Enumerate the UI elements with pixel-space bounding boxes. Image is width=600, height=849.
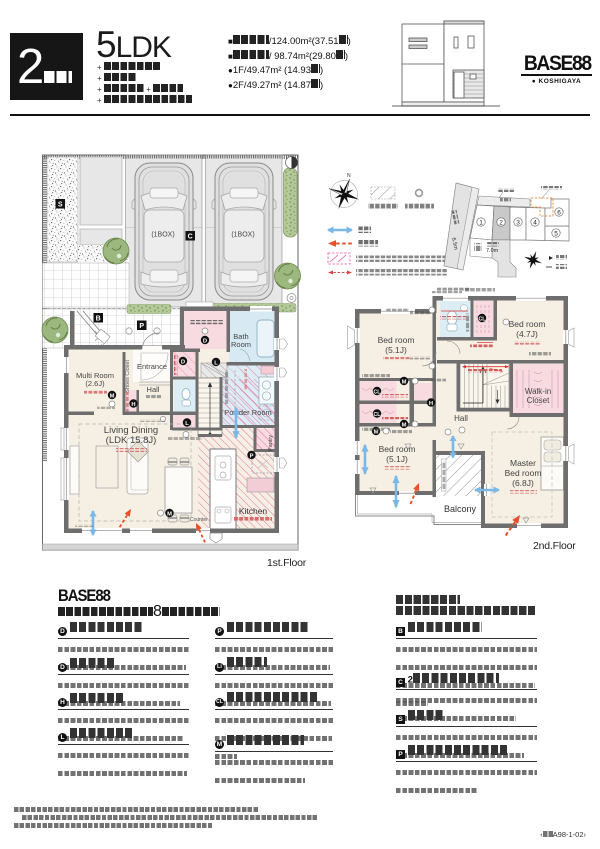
svg-text:2nd.Floor: 2nd.Floor xyxy=(533,540,576,552)
svg-text:Walk-in: Walk-in xyxy=(525,387,551,396)
svg-text:Powder Room: Powder Room xyxy=(224,408,272,417)
svg-text:1: 1 xyxy=(479,219,483,226)
svg-text:Pantry: Pantry xyxy=(268,435,274,451)
svg-text:Bed room: Bed room xyxy=(505,468,542,478)
svg-text:1st.Floor: 1st.Floor xyxy=(267,557,307,569)
svg-text:Closet: Closet xyxy=(527,396,550,405)
svg-text:CL: CL xyxy=(374,412,382,418)
svg-text:P: P xyxy=(139,323,144,330)
svg-text:(1BOX): (1BOX) xyxy=(151,232,174,239)
svg-text:(2.6J): (2.6J) xyxy=(85,379,105,388)
svg-text:M: M xyxy=(402,380,407,386)
svg-text:H: H xyxy=(131,402,135,408)
svg-text:Hall: Hall xyxy=(454,414,468,423)
svg-text:Entrance: Entrance xyxy=(137,362,167,371)
svg-text:Bed room: Bed room xyxy=(378,335,415,345)
svg-text:Hall: Hall xyxy=(147,385,160,394)
svg-text:D: D xyxy=(181,360,185,366)
svg-text:Counter: Counter xyxy=(190,517,208,523)
svg-text:(1BOX): (1BOX) xyxy=(231,232,254,239)
svg-text:Bed room: Bed room xyxy=(509,319,546,329)
svg-text:M: M xyxy=(402,423,407,429)
svg-text:P: P xyxy=(250,454,254,460)
svg-text:CL: CL xyxy=(374,390,382,396)
svg-text:(4.7J): (4.7J) xyxy=(516,329,538,339)
svg-text:5: 5 xyxy=(554,230,558,237)
svg-text:CL: CL xyxy=(479,317,487,323)
svg-text:M: M xyxy=(167,512,172,518)
svg-text:Shoes Closet: Shoes Closet xyxy=(125,360,131,393)
svg-text:Master: Master xyxy=(510,458,536,468)
svg-text:(6.8J): (6.8J) xyxy=(512,478,534,488)
svg-text:M: M xyxy=(110,394,115,400)
svg-text:Room: Room xyxy=(231,340,251,349)
svg-text:H: H xyxy=(429,401,433,407)
svg-text:D: D xyxy=(203,339,207,345)
svg-text:7.0m: 7.0m xyxy=(486,248,499,254)
svg-text:4: 4 xyxy=(533,219,537,226)
svg-text:(LDK 15.8J): (LDK 15.8J) xyxy=(106,435,157,446)
svg-text:C: C xyxy=(188,234,193,241)
svg-text:L: L xyxy=(185,421,189,427)
svg-text:6: 6 xyxy=(557,209,561,216)
svg-text:Balcony: Balcony xyxy=(444,504,477,514)
svg-text:L: L xyxy=(214,361,218,367)
svg-text:2: 2 xyxy=(499,219,503,226)
svg-text:B: B xyxy=(96,316,101,323)
svg-text:Kitchen: Kitchen xyxy=(239,506,268,516)
svg-text:(5.1J): (5.1J) xyxy=(386,454,408,464)
svg-text:(5.1J): (5.1J) xyxy=(385,345,407,355)
svg-text:S: S xyxy=(58,202,63,209)
svg-text:3: 3 xyxy=(516,219,520,226)
svg-text:N: N xyxy=(347,173,351,179)
